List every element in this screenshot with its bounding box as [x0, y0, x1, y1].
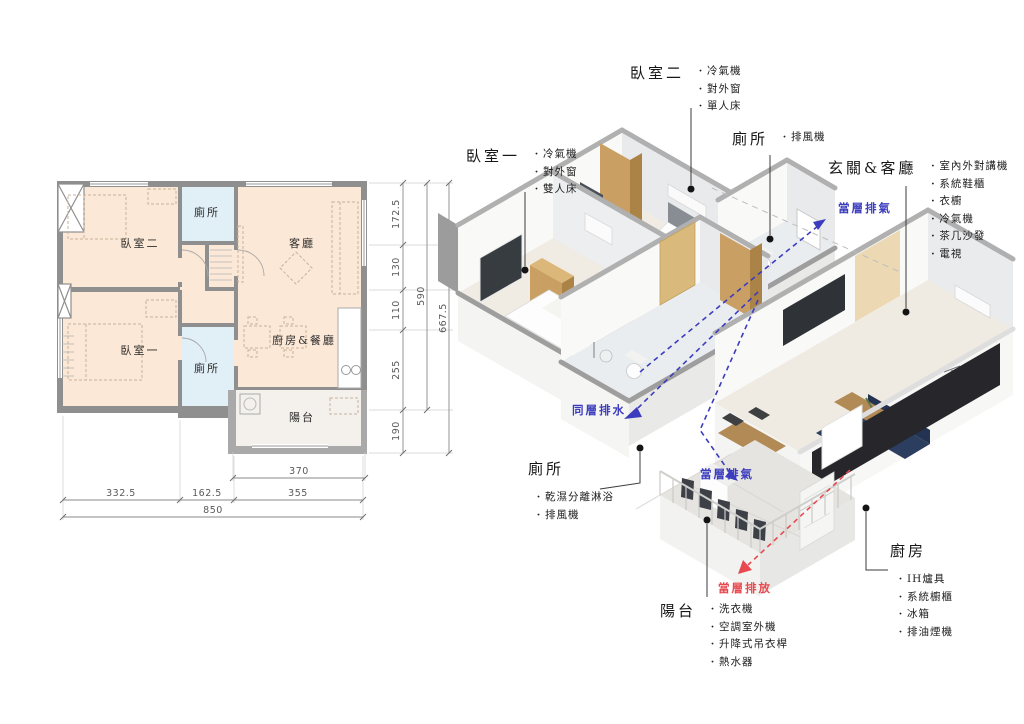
- annotation-item: 升降式吊衣桿: [708, 636, 788, 654]
- annotation-item: 單人床: [696, 98, 742, 116]
- dim-v4: 255: [391, 360, 402, 380]
- flow-label-discharge: 當層排放: [718, 580, 772, 596]
- annotation-item: 冰箱: [896, 606, 953, 624]
- annotation-title: 廁所: [732, 128, 768, 149]
- annotation-item: 排風機: [534, 507, 614, 525]
- leader-dot-toilet-left: [637, 445, 644, 452]
- dim-h2: 332.5: [106, 488, 136, 499]
- annotation-item: 冷氣機: [928, 211, 1008, 229]
- flow-label-exhaust-bottom: 當層排氣: [700, 466, 754, 482]
- bathroom-toilet-bowl: [627, 364, 642, 379]
- annotation-item: 電視: [928, 246, 1008, 264]
- dim-vt1: 590: [416, 286, 427, 306]
- plan-label-bedroom1: 臥室一: [121, 343, 160, 357]
- dim-h4: 355: [288, 488, 308, 499]
- annotation-list: IH爐具系統櫥櫃冰箱排油煙機: [896, 571, 953, 641]
- plan-label-toilet-top: 廁所: [194, 205, 220, 219]
- bedroom-ext-slab: [438, 213, 458, 293]
- drawing-layer: 臥室二 廁所 客廳 臥室一 廁所 廚房&餐廳 陽台: [0, 0, 1024, 724]
- annotation-item: 室內外對講機: [928, 158, 1008, 176]
- annotation-item: 衣櫥: [928, 193, 1008, 211]
- annotation-title: 臥室二: [630, 62, 684, 83]
- dim-vt2: 667.5: [438, 303, 449, 333]
- annotation-kitchen: 廚房 IH爐具系統櫥櫃冰箱排油煙機: [890, 540, 953, 641]
- plan-label-kitchen-dining: 廚房&餐廳: [272, 333, 336, 347]
- annotation-toilet-top: 廁所 排風機: [732, 128, 826, 149]
- plan-label-balcony: 陽台: [289, 410, 315, 424]
- annotation-item: 熱水器: [708, 654, 788, 672]
- annotation-item: 洗衣機: [708, 601, 788, 619]
- dim-v3: 110: [391, 300, 402, 320]
- annotation-list: 排風機: [780, 129, 826, 147]
- annotation-list: 冷氣機對外窗雙人床: [532, 146, 578, 199]
- annotation-title: 臥室一: [466, 145, 520, 166]
- annotation-item: 空調室外機: [708, 619, 788, 637]
- annotation-item: IH爐具: [896, 571, 953, 589]
- annotation-item: 對外窗: [696, 81, 742, 99]
- annotation-item: 系統鞋櫃: [928, 176, 1008, 194]
- annotation-title: 陽台: [660, 600, 696, 621]
- dim-v2: 130: [391, 257, 402, 277]
- annotation-item: 茶几沙發: [928, 228, 1008, 246]
- annotation-list: 乾濕分離淋浴排風機: [534, 489, 614, 524]
- dim-v5: 190: [391, 421, 402, 441]
- annotation-item: 排風機: [780, 129, 826, 147]
- dim-v1: 172.5: [391, 199, 402, 229]
- leader-dot-kitchen: [863, 505, 870, 512]
- dim-h1: 370: [289, 466, 309, 477]
- flow-label-exhaust-top: 當層排氣: [838, 200, 892, 216]
- annotation-bedroom2: 臥室二 冷氣機對外窗單人床: [630, 62, 742, 116]
- floorplan-presentation: 臥室二 廁所 客廳 臥室一 廁所 廚房&餐廳 陽台: [0, 0, 1024, 724]
- dim-ht: 850: [203, 505, 223, 516]
- leader-dot-balcony: [704, 517, 711, 524]
- annotation-title: 廁所: [528, 458, 614, 479]
- annotation-item: 對外窗: [532, 164, 578, 182]
- flow-label-drain: 同層排水: [572, 402, 626, 418]
- bathroom-sink: [600, 350, 612, 362]
- annotation-toilet-left: 廁所 乾濕分離淋浴排風機: [528, 458, 614, 524]
- annotation-list: 洗衣機空調室外機升降式吊衣桿熱水器: [708, 601, 788, 671]
- annotation-balcony: 陽台 洗衣機空調室外機升降式吊衣桿熱水器: [660, 600, 788, 671]
- dim-h3: 162.5: [192, 488, 222, 499]
- leader-dot-bedroom1: [522, 267, 529, 274]
- annotation-item: 排油煙機: [896, 624, 953, 642]
- annotation-item: 系統櫥櫃: [896, 589, 953, 607]
- leader-dot-entry-living: [903, 309, 910, 316]
- plan-label-bedroom2: 臥室二: [121, 236, 160, 250]
- leader-dot-bedroom2: [688, 186, 695, 193]
- leader-dot-toilet-top: [767, 236, 774, 243]
- annotation-list: 冷氣機對外窗單人床: [696, 63, 742, 116]
- annotation-list: 室內外對講機系統鞋櫃衣櫥冷氣機茶几沙發電視: [928, 158, 1008, 263]
- annotation-item: 冷氣機: [532, 146, 578, 164]
- annotation-bedroom1: 臥室一 冷氣機對外窗雙人床: [466, 145, 578, 199]
- annotation-item: 雙人床: [532, 181, 578, 199]
- annotation-item: 乾濕分離淋浴: [534, 489, 614, 507]
- plan-label-toilet-bottom: 廁所: [194, 361, 220, 375]
- annotation-title: 玄關&客廳: [828, 157, 916, 178]
- annotation-item: 冷氣機: [696, 63, 742, 81]
- annotation-title: 廚房: [890, 540, 953, 561]
- plan-label-living: 客廳: [289, 236, 315, 250]
- floor-plan-2d: 臥室二 廁所 客廳 臥室一 廁所 廚房&餐廳 陽台: [57, 180, 453, 520]
